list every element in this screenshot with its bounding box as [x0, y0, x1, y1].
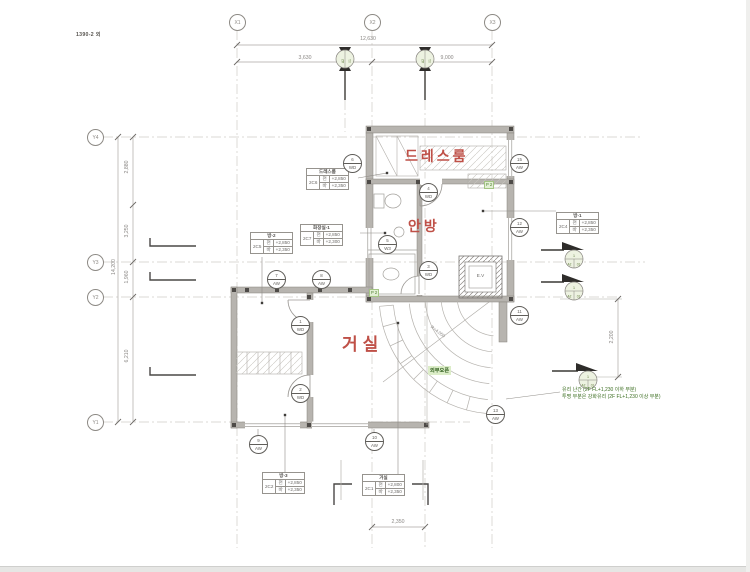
- room-tag-dressroom: 드레스룸 2C6 천+2,850 바+2,350: [306, 168, 349, 190]
- dim-left-total: 14,200: [111, 247, 117, 287]
- opening-tag-type: AW: [366, 442, 383, 450]
- room-tag-cell: 바: [314, 239, 323, 246]
- opening-tag-type: AW: [511, 228, 528, 236]
- svg-text:1: 1: [573, 254, 575, 258]
- dim-right-seg: 2,200: [609, 317, 615, 357]
- floor-plan-canvas: A2 01 A2 01 1 A2 01 1 A2: [0, 0, 750, 572]
- grid-bubble-x3: X3: [484, 14, 501, 31]
- grid-bubble-y2-label: Y2: [92, 295, 98, 301]
- column-tag-1: P 2: [484, 181, 494, 189]
- room-tag-code: 2C1: [363, 482, 376, 496]
- room-tag-name: 방-3: [263, 473, 305, 480]
- svg-text:1: 1: [573, 286, 575, 290]
- room-tag-name: 방-1: [557, 213, 599, 220]
- svg-text:A2: A2: [568, 295, 572, 299]
- room-tag-cell: +2,350: [579, 227, 598, 234]
- grid-bubble-y1-label: Y1: [92, 420, 98, 426]
- room-tag-cell: +2,350: [385, 489, 404, 496]
- grid-bubble-x2: X2: [364, 14, 381, 31]
- dim-top-right: 9,000: [432, 55, 462, 61]
- svg-text:01: 01: [348, 59, 352, 63]
- opening-tag-type: AW: [487, 415, 504, 423]
- room-tag-code: 2C6: [307, 176, 320, 190]
- svg-text:01: 01: [577, 295, 581, 299]
- grid-bubble-x2-label: X2: [369, 20, 375, 26]
- opening-tag: 3WD: [419, 261, 438, 280]
- room-tag-cell: 천: [570, 220, 579, 227]
- room-tag-name: 거실: [363, 475, 405, 482]
- curved-stair: [380, 296, 494, 425]
- svg-text:A2: A2: [341, 59, 345, 63]
- room-tag-code: 2C2: [263, 480, 276, 494]
- room-tag-cell: 바: [320, 183, 329, 190]
- room-tag-cell: +2,350: [329, 183, 348, 190]
- dim-left-seg-3: 1,960: [124, 257, 130, 297]
- opening-tag-number: 2: [292, 385, 309, 394]
- dim-top-total: 12,630: [350, 36, 386, 42]
- opening-tag: 6WD: [343, 154, 362, 173]
- room-tag-code: 2C7: [301, 232, 314, 246]
- opening-tag-number: 12: [511, 219, 528, 228]
- column-tag-2: P 2: [369, 289, 379, 297]
- opening-tag-number: 4: [420, 184, 437, 193]
- dim-bottom-seg: 2,350: [380, 519, 416, 525]
- opening-tag-number: 15: [511, 155, 528, 164]
- page-right-edge: [746, 0, 750, 572]
- room-label-master-bedroom: 안방: [408, 216, 440, 236]
- opening-tag-number: 5: [379, 236, 396, 245]
- opening-tag-type: WD: [420, 271, 437, 279]
- opening-tag: 9AW: [249, 435, 268, 454]
- section-cut-lines: [345, 68, 425, 100]
- opening-tag-number: 13: [487, 406, 504, 415]
- grid-bubble-y2: Y2: [87, 289, 104, 306]
- opening-tag: 5W3: [378, 235, 397, 254]
- opening-tag-number: 1: [292, 317, 309, 326]
- svg-text:1: 1: [587, 375, 589, 379]
- elevation-marker-right-1: 1 A2 01: [541, 242, 584, 268]
- room-tag-cell: +2,350: [273, 247, 292, 254]
- grid-bubble-y1: Y1: [87, 414, 104, 431]
- opening-tag: 7AW: [267, 270, 286, 289]
- room-tag-name: 방-2: [251, 233, 293, 240]
- room-tag-cell: +2,850: [273, 240, 292, 247]
- dim-left-seg-1: 2,880: [124, 147, 130, 187]
- opening-tag-type: WD: [344, 164, 361, 172]
- grid-bubble-y3-label: Y3: [92, 260, 98, 266]
- room-tag-cell: 천: [276, 480, 285, 487]
- grid-bubble-y4: Y4: [87, 129, 104, 146]
- opening-tag-type: WD: [420, 193, 437, 201]
- opening-tag-number: 3: [420, 262, 437, 271]
- dim-left-seg-4: 6,210: [124, 336, 130, 376]
- glass-railing-note: 유리 난간 (2F FL+1,230 이하 부분) 투명 부분은 강화유리 (2…: [562, 387, 661, 400]
- room-label-living-room: 거실: [342, 330, 383, 355]
- opening-tag-number: 6: [344, 155, 361, 164]
- opening-tag: 1WD: [291, 316, 310, 335]
- opening-tag: 10AW: [365, 432, 384, 451]
- grid-bubble-x1: X1: [229, 14, 246, 31]
- room-tag-cell: 천: [320, 176, 329, 183]
- dim-left-seg-2: 3,250: [124, 211, 130, 251]
- opening-tag: 11AW: [510, 306, 529, 325]
- room-tag-cell: 바: [276, 487, 285, 494]
- room-tag-cell: 바: [376, 489, 385, 496]
- room-tag-code: 2C4: [557, 220, 570, 234]
- opening-tag: 2WD: [291, 384, 310, 403]
- room-tag-name: 화장실-1: [301, 225, 343, 232]
- opening-tag-type: AW: [268, 280, 285, 288]
- room-tag-cell: +2,850: [329, 176, 348, 183]
- room-tag-cell: 천: [314, 232, 323, 239]
- room-tag-room3: 방-3 2C2 천+2,850 바+2,350: [262, 472, 305, 494]
- elevation-marker-bottom: 1 A2 01: [552, 363, 598, 389]
- room-tag-cell: +2,800: [385, 482, 404, 489]
- exterior-open-label: 외부오픈: [428, 366, 451, 375]
- page-bottom-edge: [0, 566, 750, 572]
- room-tag-room2: 방-2 2C5 천+2,850 바+2,350: [250, 232, 293, 254]
- opening-tag-number: 7: [268, 271, 285, 280]
- room-tag-code: 2C5: [251, 240, 264, 254]
- room-tag-cell: +2,850: [323, 232, 342, 239]
- opening-tag: 12AW: [510, 218, 529, 237]
- opening-tag-type: AW: [250, 445, 267, 453]
- opening-tag: 15AW: [510, 154, 529, 173]
- room-tag-living: 거실 2C1 천+2,800 바+2,350: [362, 474, 405, 496]
- room-label-dressroom: 드레스룸: [405, 146, 469, 166]
- room-tag-cell: +2,850: [285, 480, 304, 487]
- sheet-note: 1390-2 외: [76, 31, 101, 38]
- grid-bubble-y3: Y3: [87, 254, 104, 271]
- room-tag-cell: 천: [376, 482, 385, 489]
- opening-tag-number: 9: [250, 436, 267, 445]
- opening-tag: 4WD: [419, 183, 438, 202]
- room-tag-cell: 바: [570, 227, 579, 234]
- opening-tag-type: AW: [511, 164, 528, 172]
- opening-tag-type: W3: [379, 245, 396, 253]
- room-tag-cell: +2,850: [579, 220, 598, 227]
- glass-railing-note-line2: 투명 부분은 강화유리 (2F FL+1,230 이상 부분): [562, 394, 661, 401]
- opening-tag-number: 8: [313, 271, 330, 280]
- room-tag-cell: +2,350: [285, 487, 304, 494]
- dim-top-left: 3,630: [291, 55, 319, 61]
- opening-tag-type: WD: [292, 394, 309, 402]
- grid-bubble-y4-label: Y4: [92, 135, 98, 141]
- svg-text:01: 01: [577, 263, 581, 267]
- svg-text:A2: A2: [568, 263, 572, 267]
- section-marker-top-left: A2 01: [336, 47, 354, 71]
- opening-tag-number: 10: [366, 433, 383, 442]
- opening-tag: 13AW: [486, 405, 505, 424]
- room-tag-bath1: 화장실-1 2C7 천+2,850 바+2,300: [300, 224, 343, 246]
- grid-bubble-x3-label: X3: [489, 20, 495, 26]
- elevation-marker-right-2: 1 A2 01: [541, 274, 584, 300]
- elevator-label: E.V: [470, 273, 491, 278]
- opening-tag-type: AW: [313, 280, 330, 288]
- grid-bubble-x1-label: X1: [234, 20, 240, 26]
- opening-tag-type: WD: [292, 326, 309, 334]
- svg-text:A2: A2: [421, 59, 425, 63]
- room-tag-cell: 바: [264, 247, 273, 254]
- room-tag-cell: +2,300: [323, 239, 342, 246]
- opening-tag: 8AW: [312, 270, 331, 289]
- opening-tag-number: 11: [511, 307, 528, 316]
- room-tag-name: 드레스룸: [307, 169, 349, 176]
- room-tag-room1: 방-1 2C4 천+2,850 바+2,350: [556, 212, 599, 234]
- opening-tag-type: AW: [511, 316, 528, 324]
- room-tag-cell: 천: [264, 240, 273, 247]
